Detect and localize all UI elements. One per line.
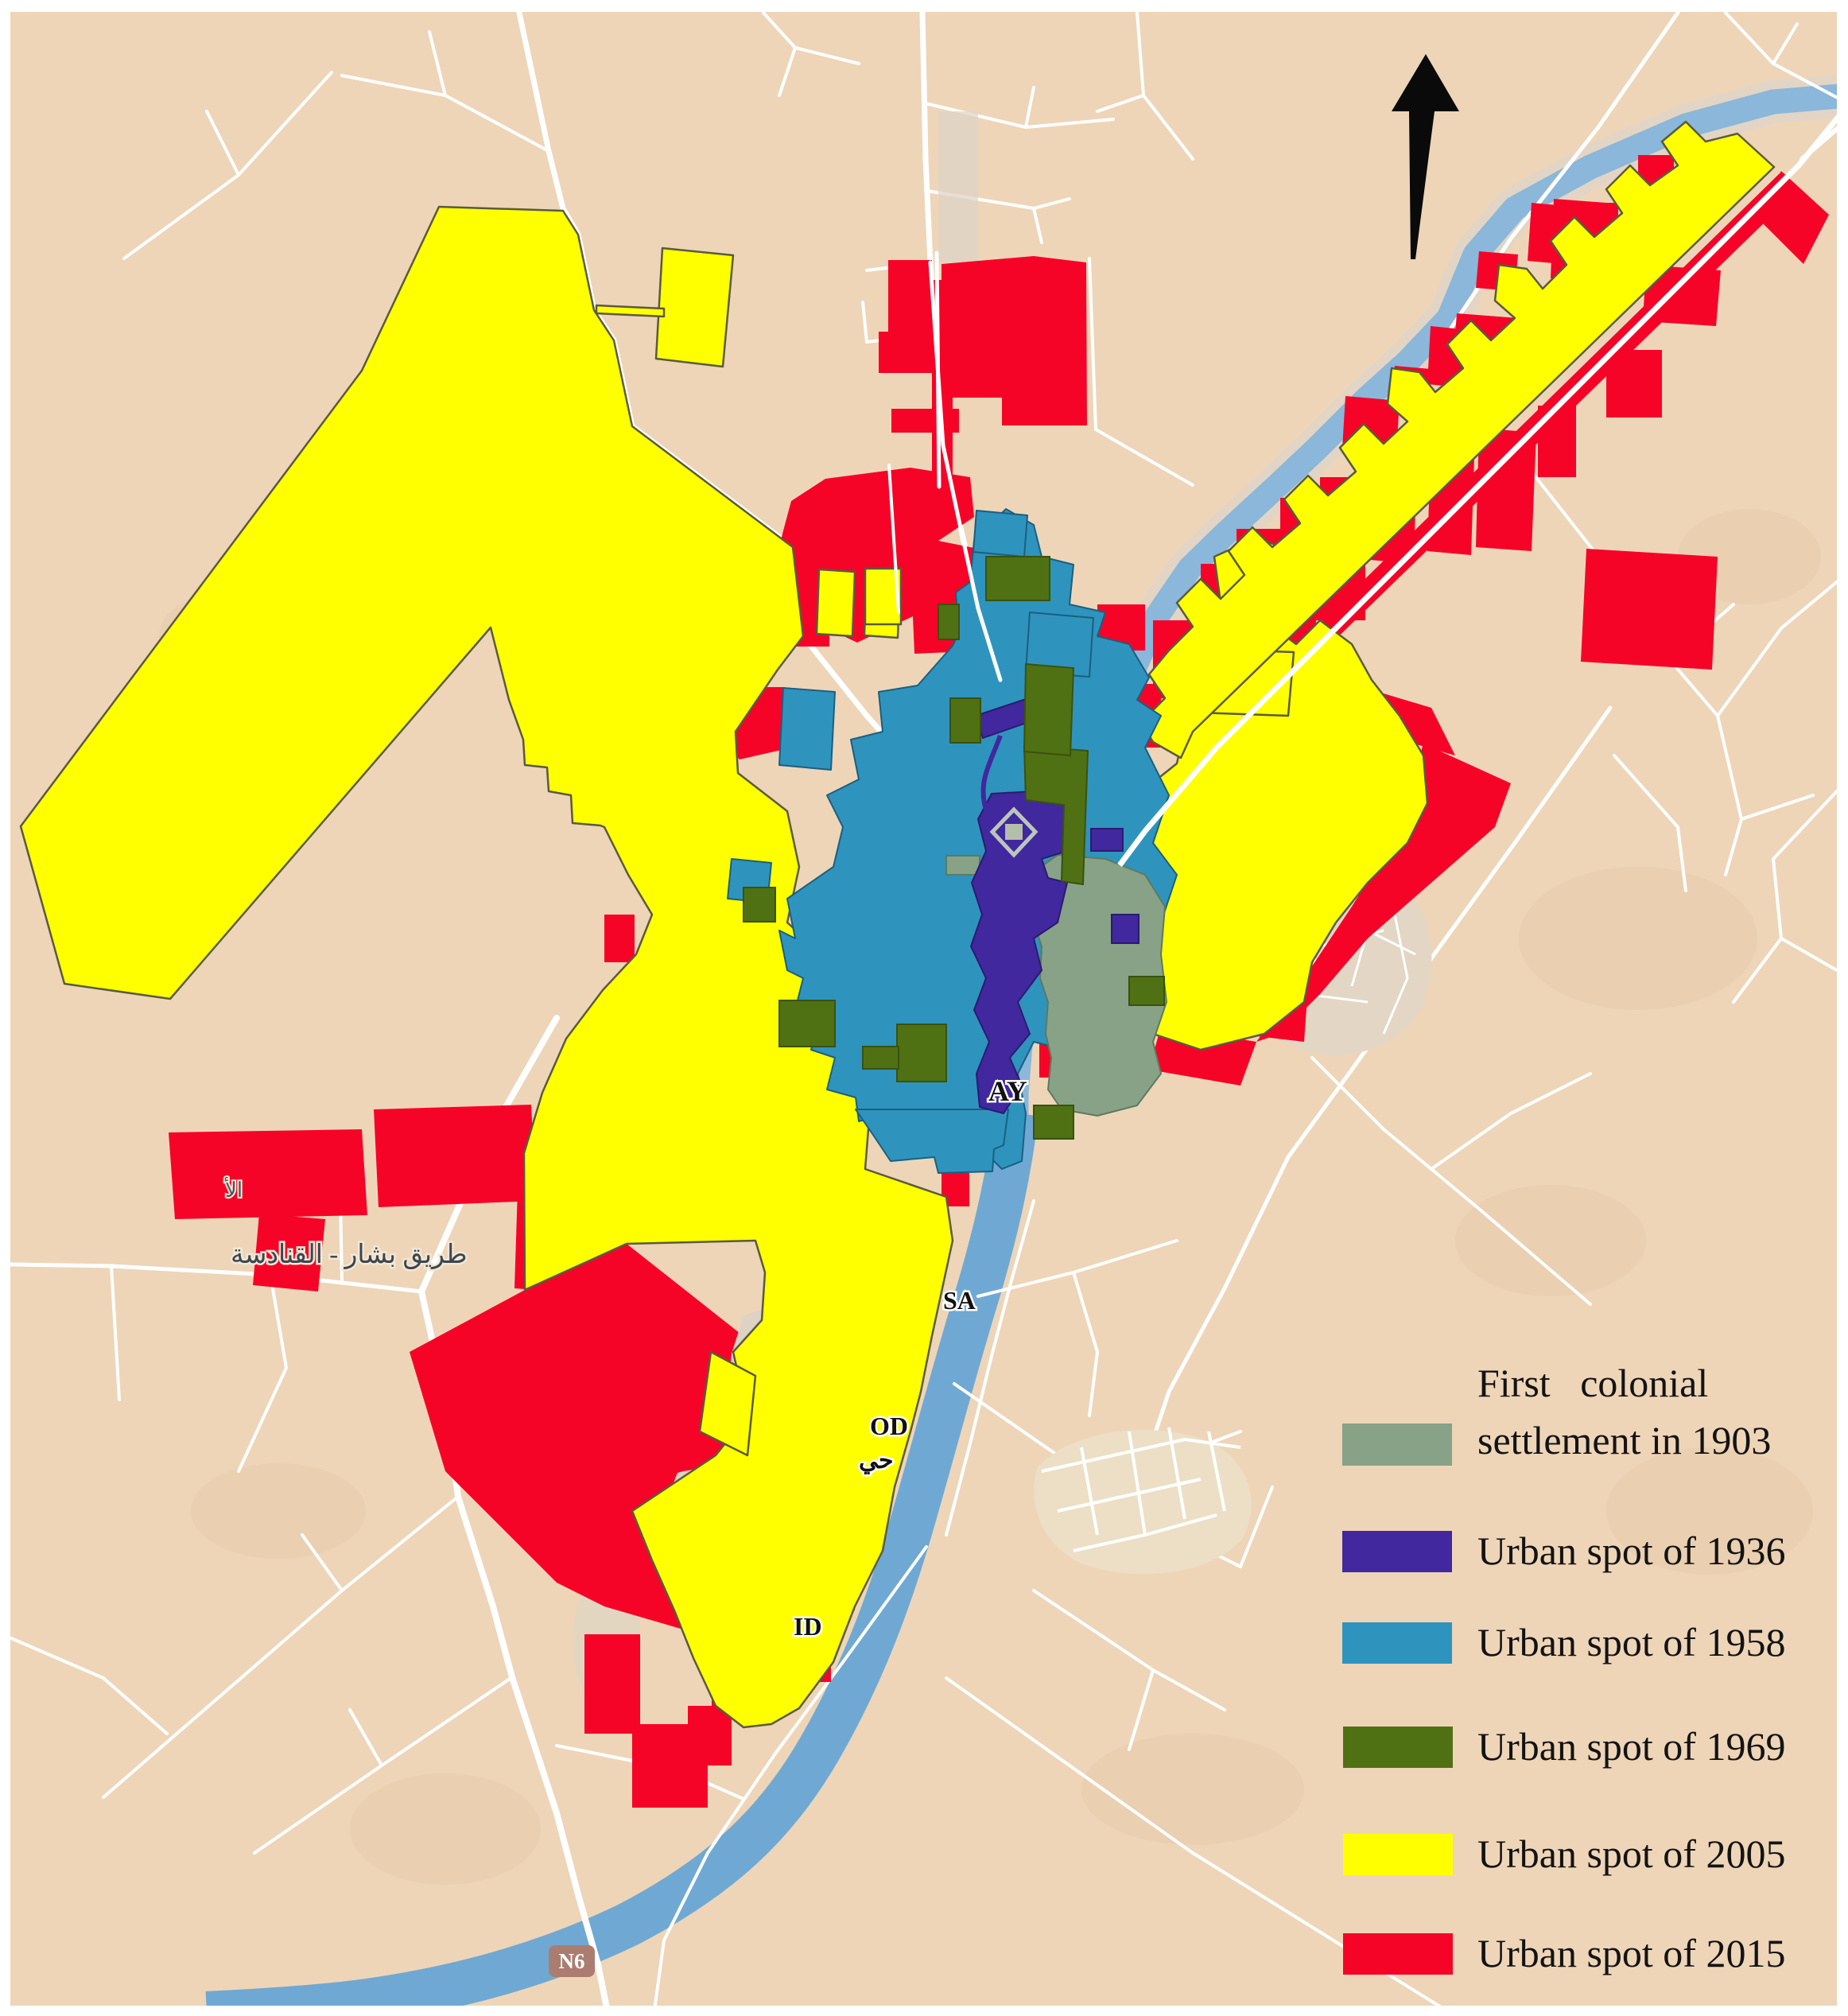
svg-text:Urban spot of 1936: Urban spot of 1936 xyxy=(1477,1529,1785,1573)
svg-text:settlement in 1903: settlement in 1903 xyxy=(1477,1418,1771,1462)
svg-text:طريق بشار - القنادسة: طريق بشار - القنادسة xyxy=(231,1241,468,1270)
svg-text:ID: ID xyxy=(794,1612,822,1641)
svg-text:حي: حي xyxy=(859,1447,894,1474)
svg-text:Urban spot of 1958: Urban spot of 1958 xyxy=(1477,1620,1785,1664)
svg-text:Urban spot of 2005: Urban spot of 2005 xyxy=(1477,1831,1785,1876)
svg-text:AY: AY xyxy=(988,1075,1027,1107)
svg-text:SA: SA xyxy=(943,1286,976,1315)
svg-text:OD: OD xyxy=(870,1412,908,1440)
svg-text:Urban spot of 1969: Urban spot of 1969 xyxy=(1477,1724,1785,1769)
svg-text:First colonial: First colonial xyxy=(1477,1361,1708,1405)
svg-text:N6: N6 xyxy=(559,1949,585,1973)
svg-text:الأ: الأ xyxy=(224,1176,243,1202)
svg-text:Urban spot of 2015: Urban spot of 2015 xyxy=(1477,1931,1785,1975)
